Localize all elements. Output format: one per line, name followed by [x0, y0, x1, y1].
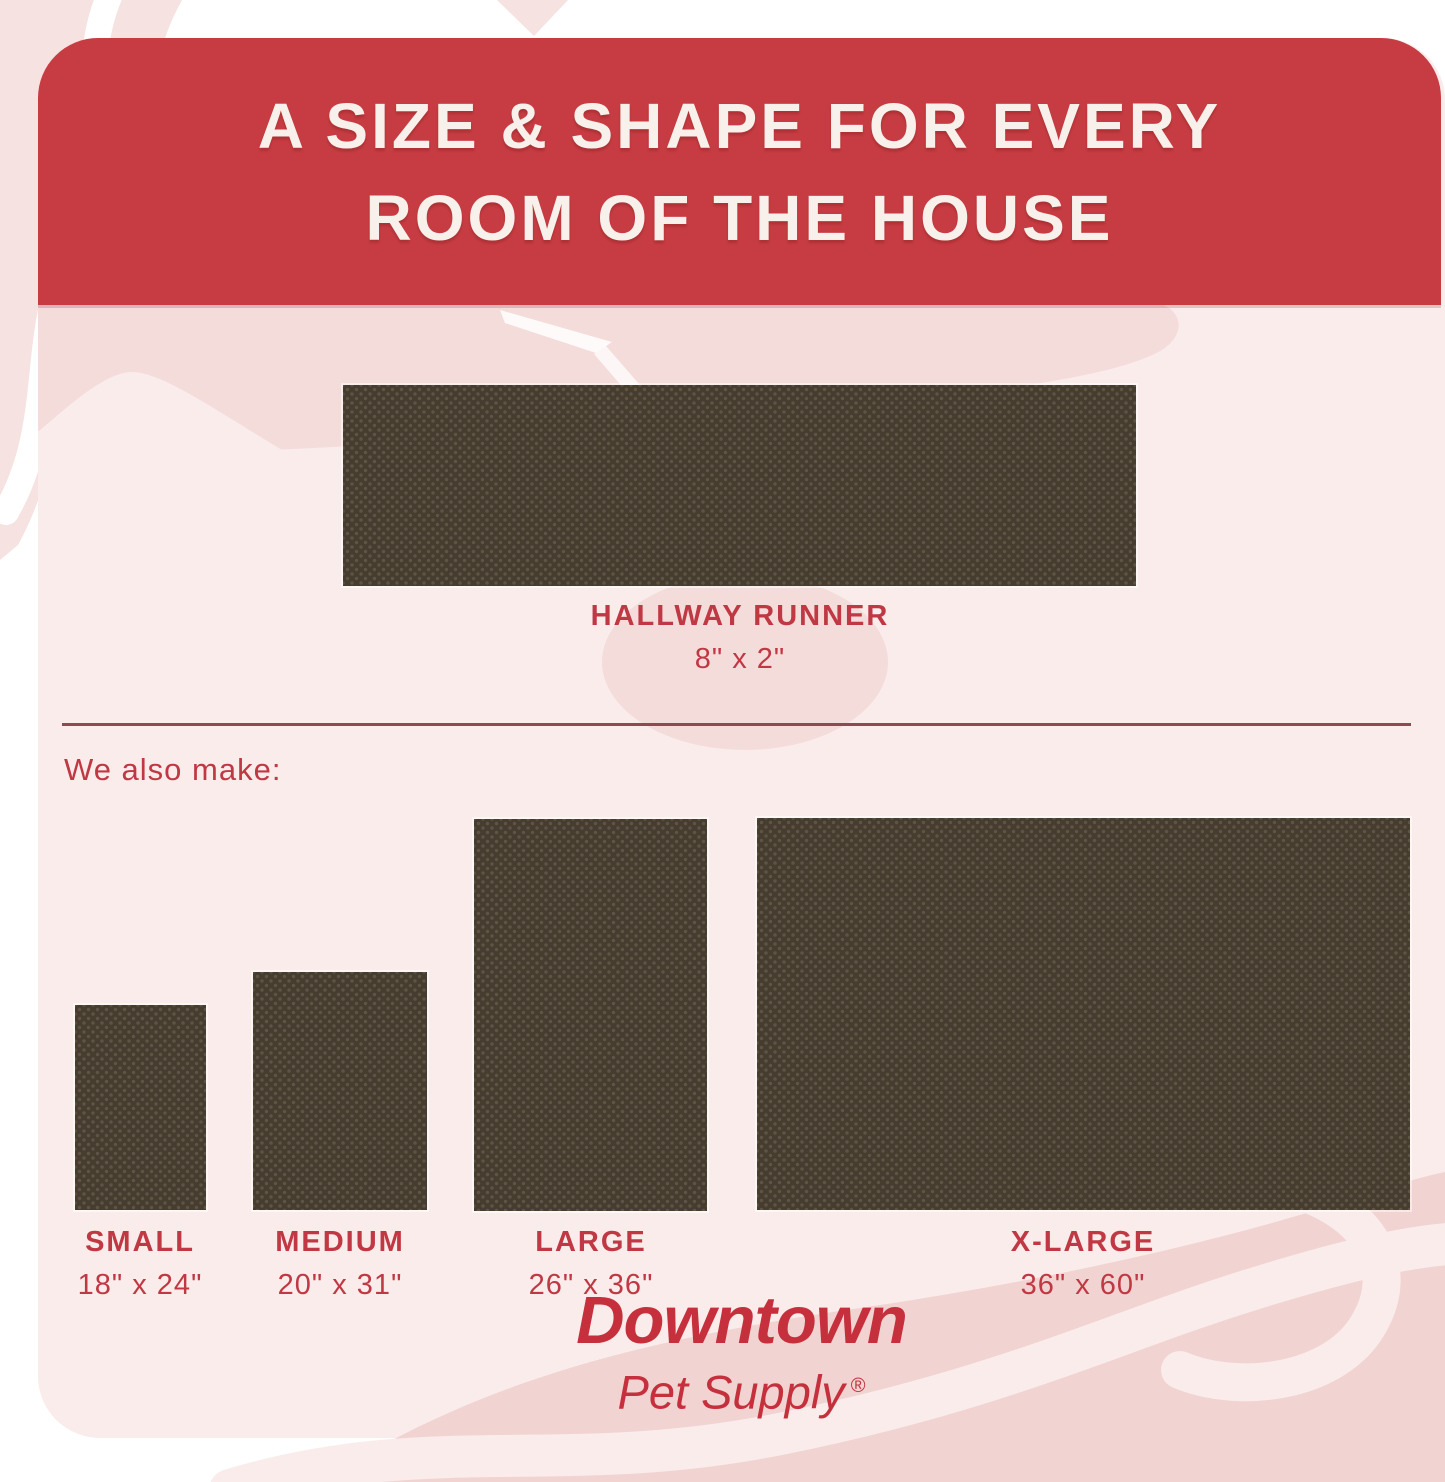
infographic-page: A SIZE & SHAPE FOR EVERY ROOM OF THE HOU… [0, 0, 1445, 1482]
mat-small [75, 1005, 206, 1210]
bone-wedge-top-center [497, 0, 568, 36]
header-banner: A SIZE & SHAPE FOR EVERY ROOM OF THE HOU… [38, 38, 1441, 305]
hallway-runner-dimensions: 8" x 2" [440, 643, 1040, 676]
mat-large [474, 819, 707, 1211]
banner-title-line2: ROOM OF THE HOUSE [366, 172, 1114, 264]
brand-subtitle-text: Pet Supply [617, 1366, 844, 1419]
registered-trademark-symbol: ® [851, 1375, 866, 1397]
hallway-runner-label: HALLWAY RUNNER 8" x 2" [440, 600, 1040, 676]
xlarge-name: X-LARGE [958, 1226, 1208, 1259]
banner-title-line1: A SIZE & SHAPE FOR EVERY [258, 80, 1221, 172]
mat-medium [253, 972, 427, 1210]
we-also-make-note: We also make: [64, 752, 281, 788]
brand-name: Downtown [38, 1288, 1445, 1354]
brand-subtitle: Pet Supply® [38, 1360, 1445, 1419]
brand-logo: Downtown Pet Supply® [38, 1288, 1445, 1419]
divider-line [62, 723, 1411, 726]
hallway-runner-name: HALLWAY RUNNER [440, 600, 1040, 633]
medium-name: MEDIUM [215, 1226, 465, 1259]
mat-hallway-runner [343, 385, 1136, 586]
large-name: LARGE [466, 1226, 716, 1259]
mat-xlarge [757, 818, 1410, 1210]
